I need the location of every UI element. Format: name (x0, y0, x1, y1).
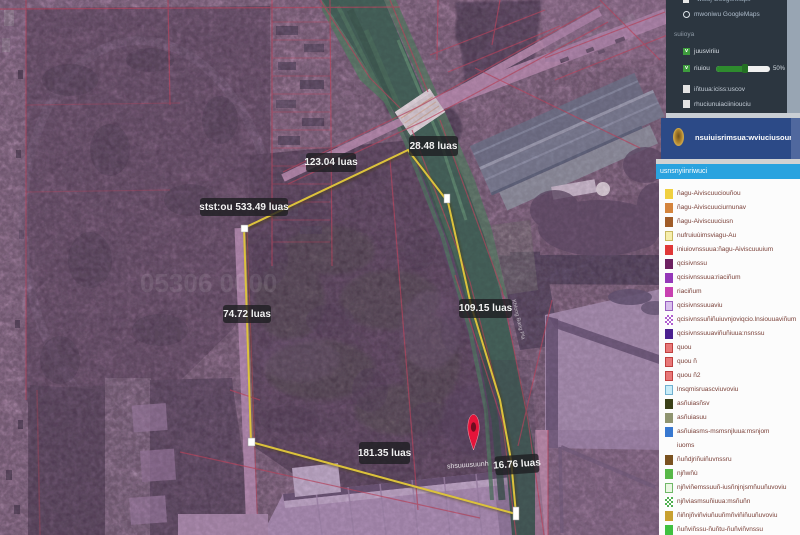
svg-text:05306 0000: 05306 0000 (140, 268, 277, 298)
